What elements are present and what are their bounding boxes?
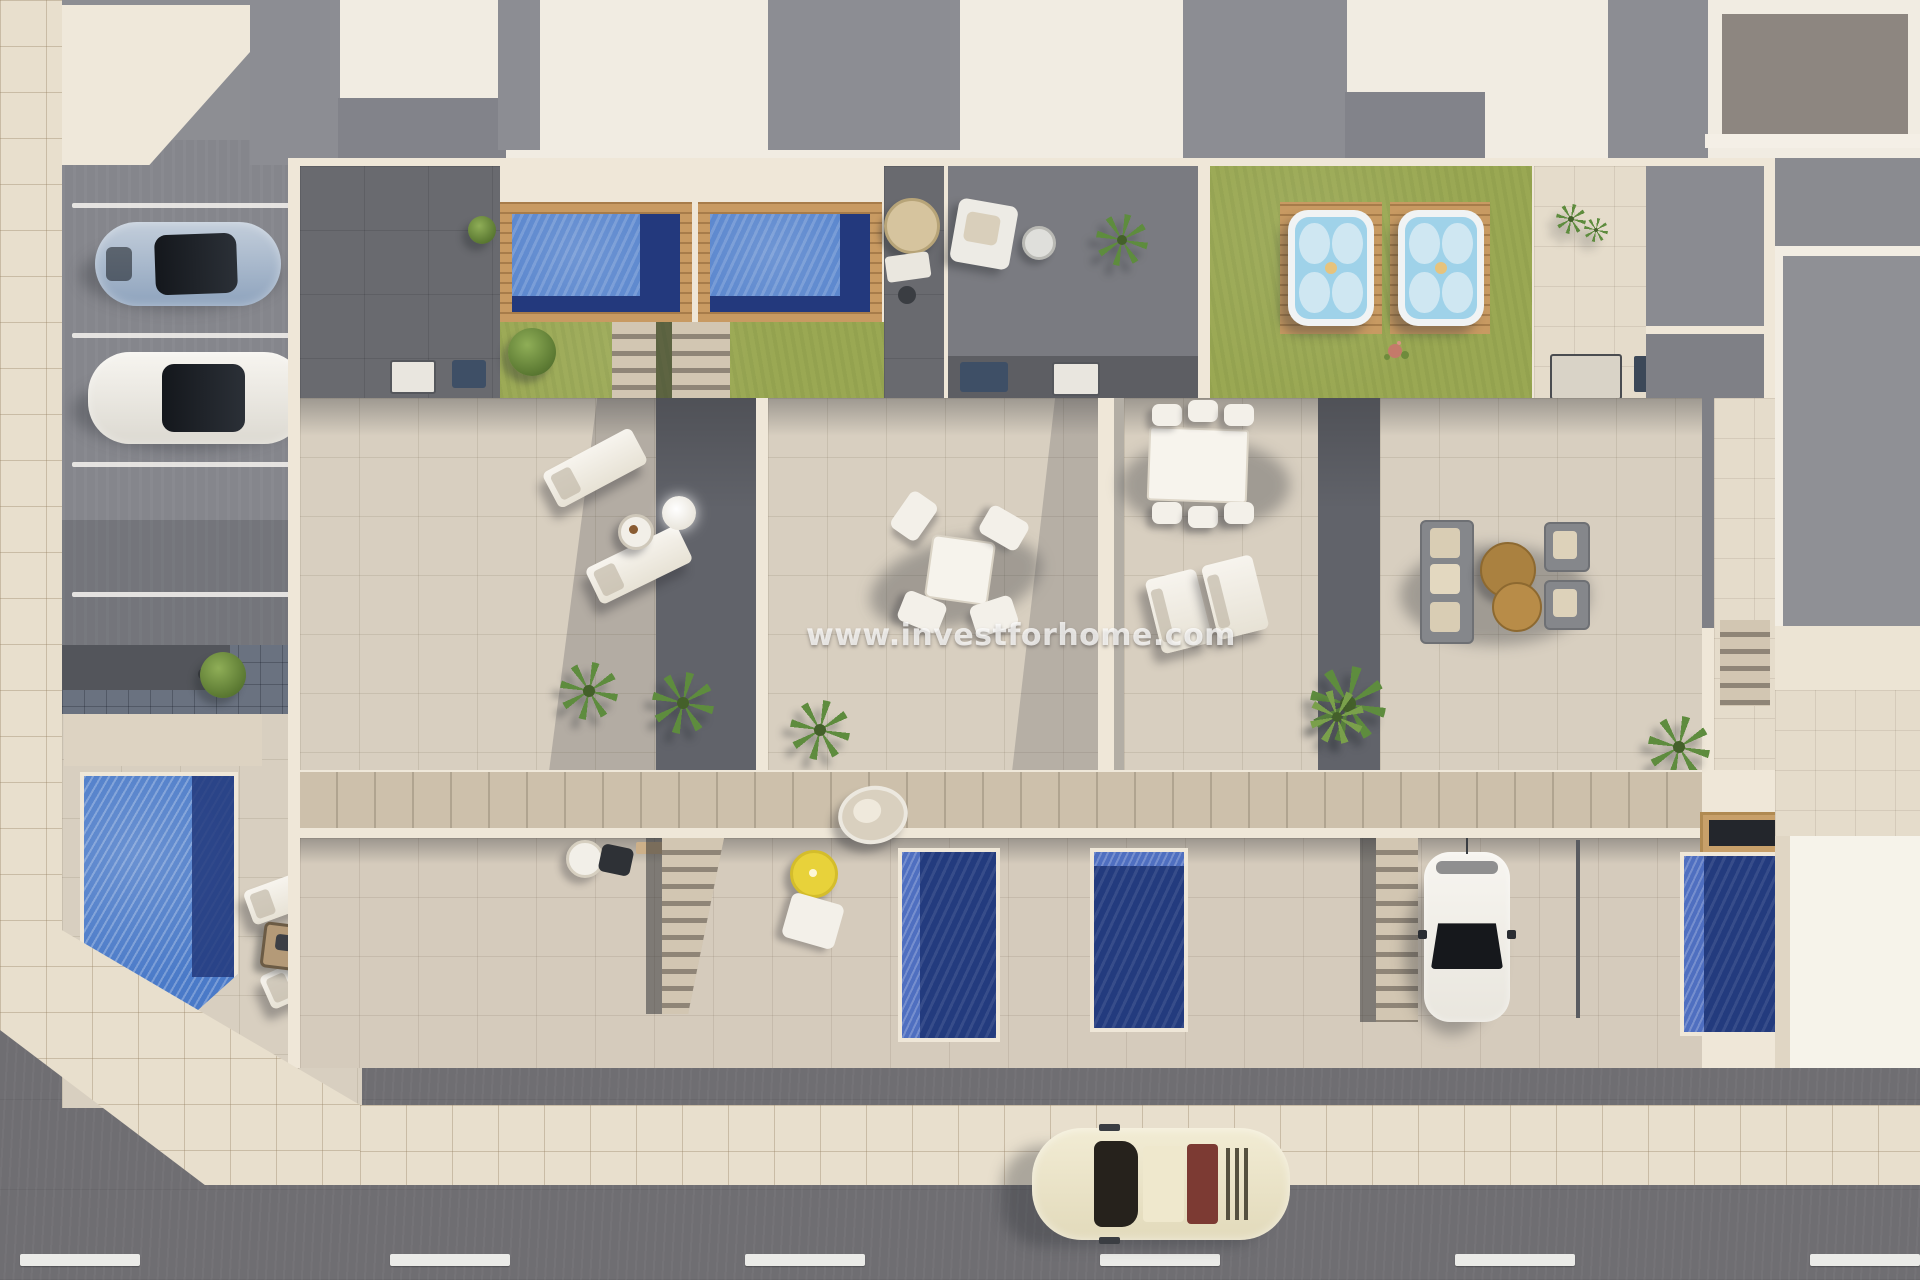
rear-window: [1436, 861, 1498, 875]
potted-bush: [468, 216, 496, 244]
hot-tub-2: [1398, 210, 1484, 326]
wall-shadow: [1114, 398, 1124, 770]
round-table: [1022, 226, 1056, 260]
roof-gap: [250, 0, 340, 165]
roof-gap: [768, 0, 960, 150]
neighbor-roof-top: [1722, 14, 1908, 134]
yellow-parasol-table: [790, 850, 838, 898]
parking-line: [72, 203, 320, 208]
palm-tree: [652, 672, 714, 734]
silver-sports-car: [95, 222, 281, 306]
wood-stairs: [672, 322, 730, 400]
palm-tree: [1584, 218, 1608, 242]
pool-shade: [640, 214, 680, 298]
round-coffee-table: [1492, 582, 1542, 632]
sunlit-yard: [1790, 836, 1920, 1068]
round-side-table: [618, 514, 654, 550]
white-sedan-car: [88, 352, 306, 444]
bbq-counter: [390, 360, 436, 394]
palm-tree: [1648, 716, 1710, 778]
tub-center: [1325, 262, 1337, 274]
garden-tree: [508, 328, 556, 376]
lane-marking: [1100, 1254, 1220, 1266]
stairs-shadow: [1360, 838, 1376, 1022]
neighbor-parapet: [1775, 256, 1783, 626]
pool-sunlit-strip: [902, 852, 920, 1038]
outdoor-kitchen: [1550, 354, 1622, 400]
cream-classic-car: [1032, 1128, 1290, 1240]
wicker-parasol: [884, 198, 940, 254]
dining-chair: [1224, 502, 1254, 524]
garden-pool-unit2: [898, 848, 1000, 1042]
sofa-cushion: [1430, 564, 1460, 594]
side-mirror: [1507, 930, 1516, 939]
lane-marking: [1455, 1254, 1575, 1266]
side-mirror: [1418, 930, 1427, 939]
roof-parapet-line: [1646, 326, 1764, 334]
bbq-unit: [960, 362, 1008, 392]
hot-tub-water: [1405, 217, 1477, 319]
adjacent-roof-upper: [1646, 166, 1764, 326]
car-roof: [1143, 1146, 1184, 1222]
dining-table: [1147, 426, 1250, 503]
railing: [1576, 840, 1580, 1018]
lane-marking: [1810, 1254, 1920, 1266]
neighbor-parapet: [1705, 134, 1920, 148]
side-stairs: [1720, 620, 1770, 706]
wood-walkway: [300, 770, 1702, 830]
divider-wall: [756, 398, 768, 770]
rooftop-pool-2: [710, 214, 870, 312]
walkway-edge: [300, 828, 1702, 838]
garden-pool-unit3: [1090, 848, 1188, 1032]
side-mirror: [1099, 1124, 1120, 1132]
side-passage: [1714, 398, 1775, 770]
parasol-pole: [809, 869, 817, 877]
watermark-text: www.investforhome.com: [806, 618, 1236, 653]
pool-sunlit-strip: [1094, 852, 1184, 866]
lane-marking: [745, 1254, 865, 1266]
pool-deep-end: [192, 776, 234, 977]
garden-pool-unit4: [1680, 852, 1788, 1036]
roof-gap: [1608, 0, 1708, 165]
rear-window: [1187, 1144, 1218, 1225]
windshield: [1094, 1141, 1138, 1226]
dining-chair: [1188, 400, 1218, 422]
bean-bag: [963, 211, 1002, 246]
wood-stairs: [612, 322, 656, 400]
parking-line: [72, 333, 320, 338]
roof-gap: [1183, 0, 1347, 165]
dining-chair: [1152, 502, 1182, 524]
side-mirror: [1099, 1237, 1120, 1245]
palm-tree: [790, 700, 850, 760]
car-canopy-glass: [153, 232, 237, 295]
tub-seat: [1442, 272, 1472, 313]
bbq-counter: [1052, 362, 1100, 396]
palm-tree: [1556, 204, 1586, 234]
antenna: [1466, 838, 1468, 854]
tub-seat: [1409, 223, 1439, 264]
yard-edge: [1775, 836, 1790, 1068]
neighbor-parapet: [1775, 246, 1920, 256]
sidewalk-left: [0, 0, 62, 955]
car-hood-vent: [106, 247, 132, 281]
dining-chair: [1224, 404, 1254, 426]
chair-cushion: [1553, 531, 1577, 559]
parking-line: [72, 592, 320, 597]
pool-sunlit-strip: [1684, 856, 1704, 1032]
flower-bed: [1388, 344, 1402, 358]
tub-seat: [1332, 272, 1362, 313]
tub-seat: [1442, 223, 1472, 264]
dining-chair: [1152, 404, 1182, 426]
lane-marking: [20, 1254, 140, 1266]
neighbor-roof-edge: [1775, 158, 1920, 256]
bbq-unit: [452, 360, 486, 388]
garden-path: [64, 714, 262, 766]
wall-shadow: [768, 398, 1098, 436]
palm-tree: [1096, 214, 1148, 266]
roof-shadow-patch: [1345, 92, 1485, 165]
windshield: [1431, 923, 1503, 969]
palm-tree: [560, 662, 618, 720]
pool-edge-shadow: [710, 296, 870, 312]
hot-tub-water: [1295, 217, 1367, 319]
leafy-plant: [1310, 690, 1364, 744]
aerial-render: www.investforhome.com: [0, 0, 1920, 1280]
neighbor-terrace: [1775, 626, 1920, 690]
lane-marking: [390, 1254, 510, 1266]
lounge-rug: [949, 197, 1019, 270]
pool-shade: [840, 214, 870, 298]
neighbor-flat-roof: [1775, 256, 1920, 626]
side-table: [898, 286, 916, 304]
outdoor-sofa: [1420, 520, 1474, 644]
rooftop-pool-1: [512, 214, 680, 312]
glow-ball-lamp: [662, 496, 696, 530]
round-table: [566, 840, 604, 878]
table-tray: [629, 525, 638, 534]
roof-shadow-patch: [338, 98, 506, 165]
round-bush: [200, 652, 246, 698]
engine-vents: [1226, 1148, 1249, 1220]
tub-seat: [1409, 272, 1439, 313]
tub-seat: [1299, 223, 1329, 264]
parking-line: [72, 462, 320, 467]
hot-tub-1: [1288, 210, 1374, 326]
tub-center: [1435, 262, 1447, 274]
sofa-cushion: [1430, 602, 1460, 632]
neighbor-patio: [1775, 690, 1920, 836]
sofa-cushion: [1430, 528, 1460, 558]
pool-edge-shadow: [512, 296, 680, 312]
tub-seat: [1299, 272, 1329, 313]
lounge-armchair: [1544, 522, 1590, 572]
stairs-shadow: [646, 838, 662, 1014]
tub-seat: [1332, 223, 1362, 264]
roof-gap: [498, 0, 540, 150]
chair-cushion: [1553, 589, 1577, 617]
dining-chair: [1188, 506, 1218, 528]
white-hatchback-car: [1424, 852, 1510, 1022]
square-dining-table: [924, 534, 996, 606]
car-canopy-glass: [162, 364, 245, 432]
wall-shadow: [1380, 398, 1702, 436]
lounge-armchair: [1544, 580, 1590, 630]
stairs-shadow: [656, 322, 672, 400]
chair-cushion: [851, 797, 883, 825]
